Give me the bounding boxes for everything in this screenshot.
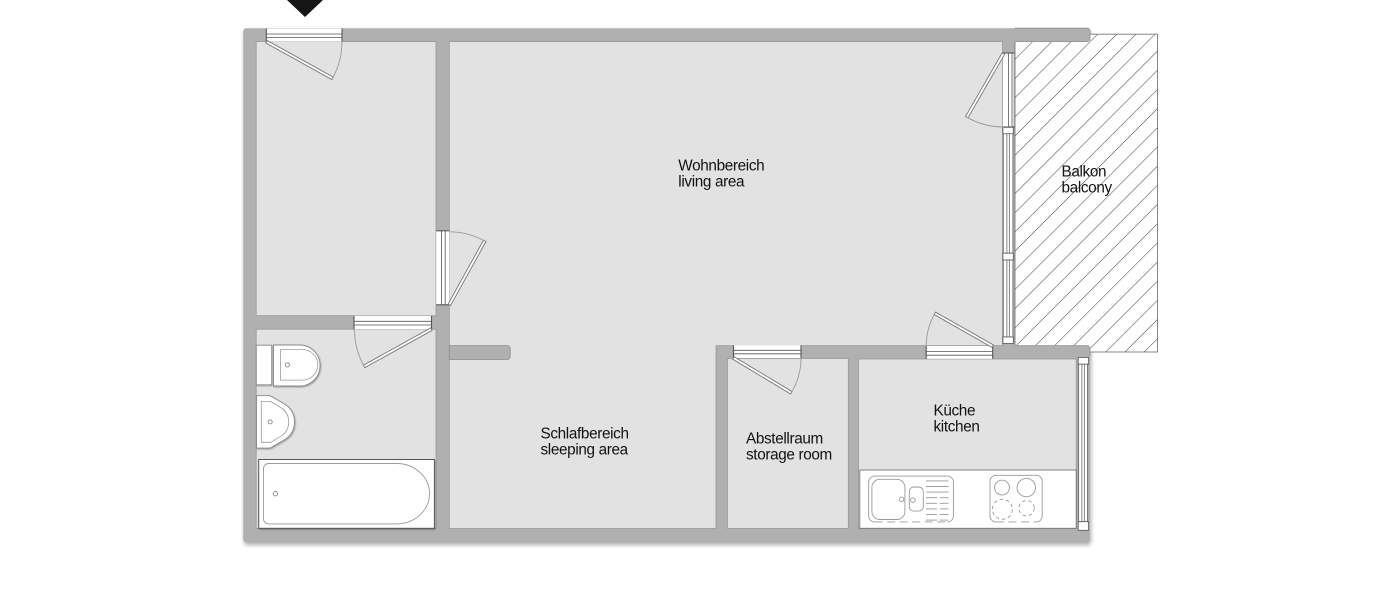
svg-text:storage room: storage room [746, 447, 832, 464]
svg-text:Balkon: Balkon [1062, 164, 1107, 181]
svg-text:Küche: Küche [934, 403, 976, 420]
svg-text:Wohnbereich: Wohnbereich [678, 158, 764, 175]
svg-text:living area: living area [678, 173, 745, 190]
svg-text:sleeping area: sleeping area [541, 441, 629, 458]
svg-text:Abstellraum: Abstellraum [746, 431, 823, 448]
svg-text:kitchen: kitchen [934, 418, 980, 435]
svg-text:Schlafbereich: Schlafbereich [541, 426, 629, 443]
svg-text:balcony: balcony [1062, 180, 1113, 197]
